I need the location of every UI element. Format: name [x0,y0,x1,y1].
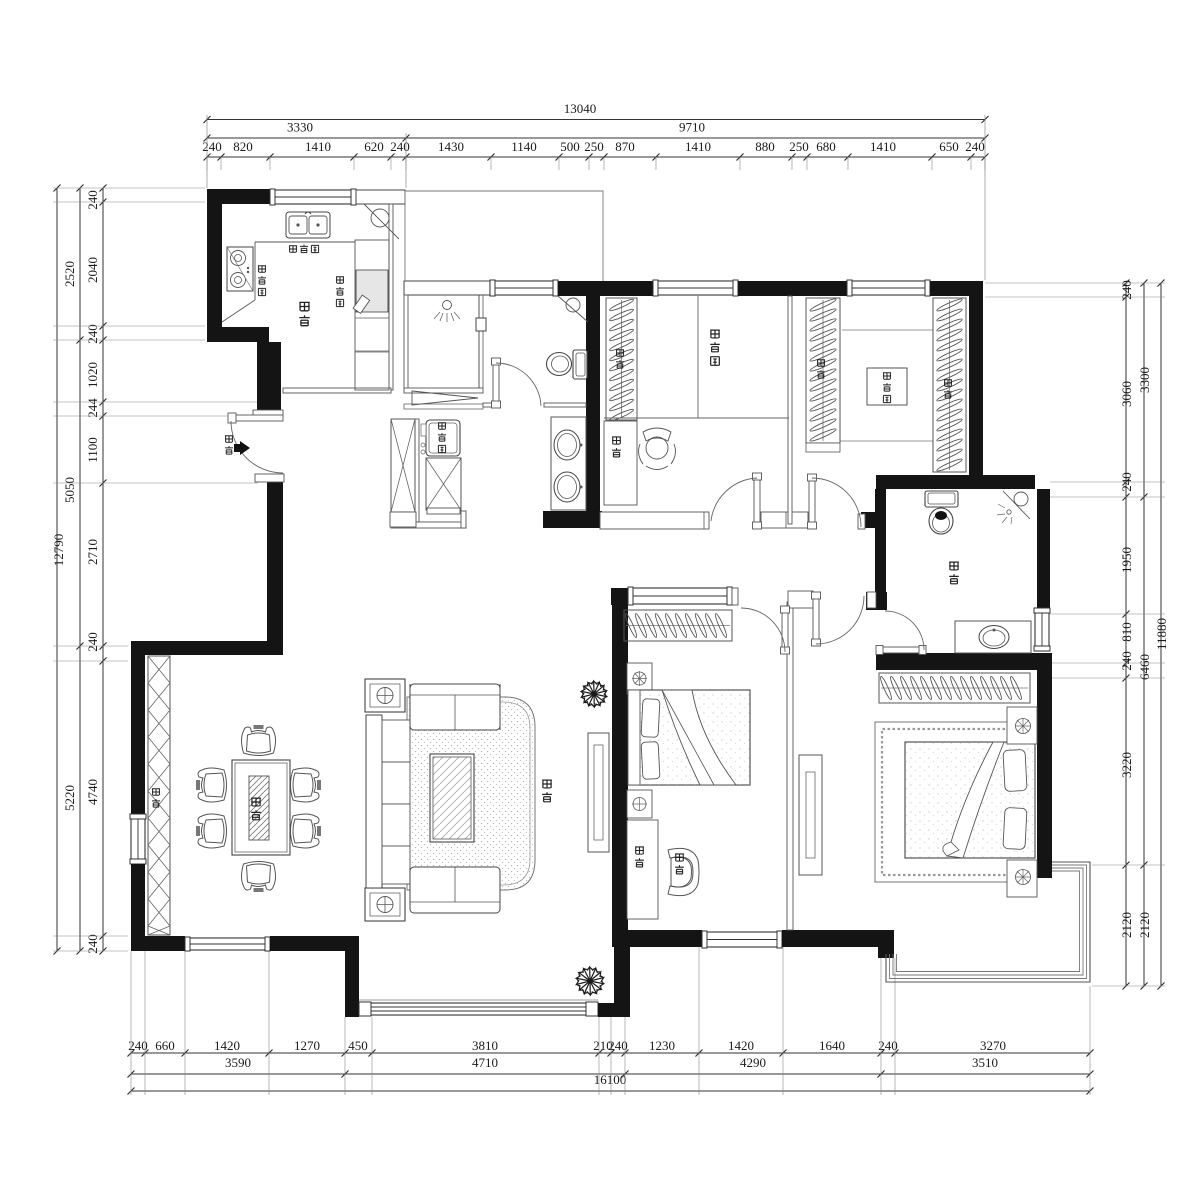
svg-text:3060: 3060 [1119,381,1134,407]
svg-text:820: 820 [233,139,253,154]
svg-text:9710: 9710 [679,120,705,135]
svg-text:2710: 2710 [85,539,100,565]
svg-text:240: 240 [85,190,100,210]
svg-text:1270: 1270 [294,1038,320,1053]
svg-text:4740: 4740 [85,779,100,805]
svg-text:650: 650 [939,139,959,154]
svg-text:1140: 1140 [511,139,537,154]
svg-text:500: 500 [560,139,580,154]
svg-text:3220: 3220 [1119,752,1134,778]
svg-text:250: 250 [789,139,809,154]
svg-text:1100: 1100 [85,437,100,463]
svg-text:1950: 1950 [1119,547,1134,573]
svg-text:4710: 4710 [472,1055,498,1070]
svg-text:3330: 3330 [287,120,313,135]
svg-text:1020: 1020 [85,362,100,388]
svg-text:240: 240 [965,139,985,154]
svg-text:1420: 1420 [728,1038,754,1053]
svg-text:810: 810 [1119,622,1134,642]
svg-text:240: 240 [85,324,100,344]
svg-text:2120: 2120 [1137,912,1152,938]
svg-text:6460: 6460 [1137,654,1152,680]
svg-text:3510: 3510 [972,1055,998,1070]
svg-text:244: 244 [85,398,100,418]
svg-text:240: 240 [202,139,222,154]
svg-text:2120: 2120 [1119,912,1134,938]
svg-text:1410: 1410 [305,139,331,154]
svg-text:3300: 3300 [1137,367,1152,393]
svg-text:240: 240 [390,139,410,154]
svg-text:660: 660 [155,1038,175,1053]
svg-text:1640: 1640 [819,1038,845,1053]
svg-text:1410: 1410 [685,139,711,154]
svg-text:870: 870 [615,139,635,154]
svg-text:680: 680 [816,139,836,154]
svg-text:3270: 3270 [980,1038,1006,1053]
svg-text:13040: 13040 [564,101,597,116]
svg-text:1410: 1410 [870,139,896,154]
svg-text:12790: 12790 [51,534,66,567]
svg-text:620: 620 [364,139,384,154]
svg-text:16100: 16100 [594,1072,627,1087]
svg-text:1230: 1230 [649,1038,675,1053]
svg-text:1420: 1420 [214,1038,240,1053]
svg-text:1430: 1430 [438,139,464,154]
svg-text:5050: 5050 [62,477,77,503]
svg-text:3810: 3810 [472,1038,498,1053]
svg-text:450: 450 [348,1038,368,1053]
svg-text:240: 240 [1119,651,1134,671]
svg-text:5220: 5220 [62,785,77,811]
svg-text:880: 880 [755,139,775,154]
svg-text:4290: 4290 [740,1055,766,1070]
svg-text:2520: 2520 [62,261,77,287]
svg-text:2040: 2040 [85,257,100,283]
svg-text:250: 250 [584,139,604,154]
svg-text:240: 240 [85,632,100,652]
svg-text:11880: 11880 [1154,618,1169,650]
svg-text:3590: 3590 [225,1055,251,1070]
